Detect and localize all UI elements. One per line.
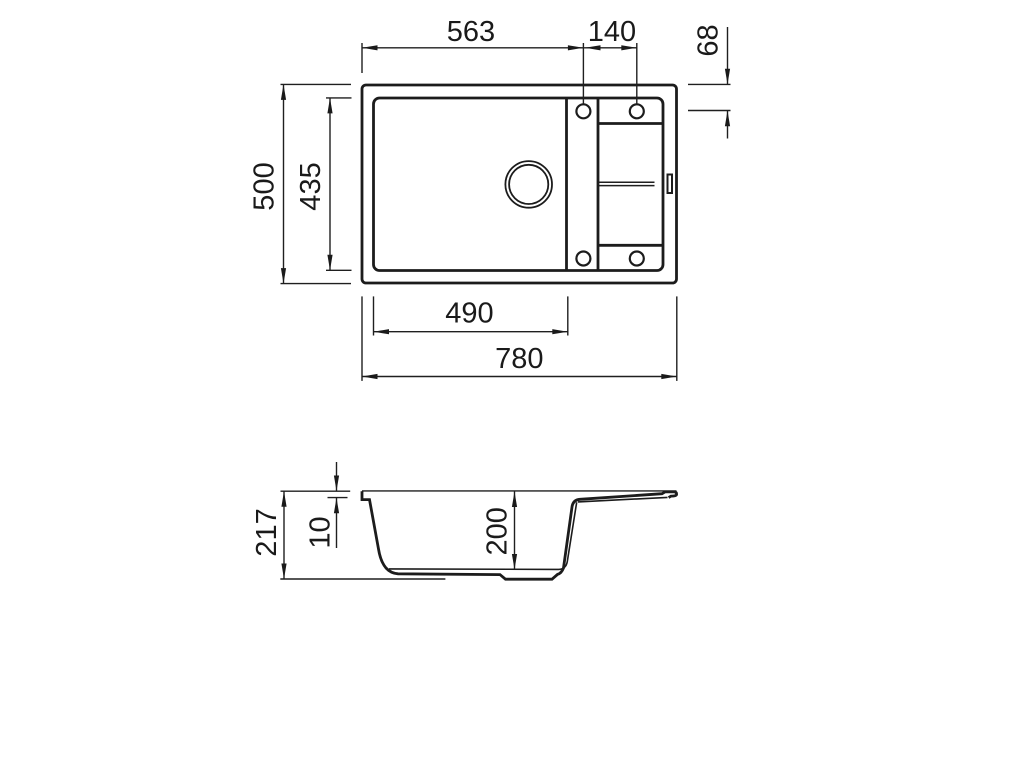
svg-text:200: 200: [482, 507, 514, 555]
svg-text:500: 500: [249, 162, 281, 210]
svg-text:490: 490: [445, 298, 493, 330]
svg-text:563: 563: [447, 16, 495, 48]
svg-text:217: 217: [251, 508, 283, 556]
svg-text:435: 435: [295, 162, 327, 210]
svg-text:140: 140: [588, 16, 636, 48]
svg-text:10: 10: [304, 516, 336, 548]
svg-text:780: 780: [495, 343, 543, 375]
svg-text:68: 68: [693, 24, 725, 56]
